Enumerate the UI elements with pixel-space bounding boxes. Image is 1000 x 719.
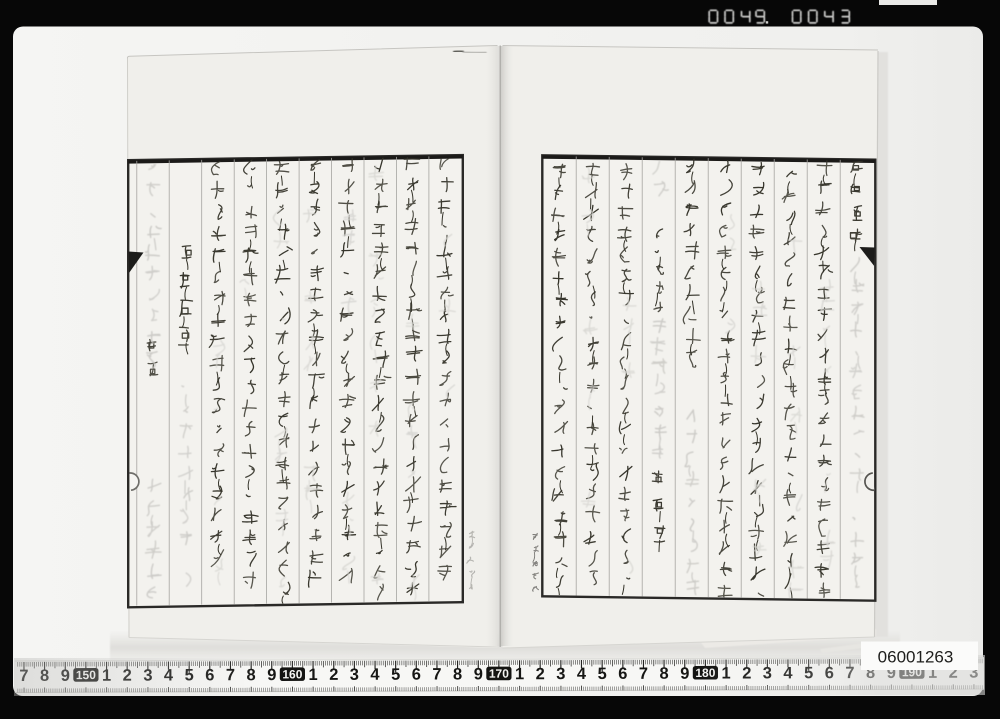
svg-text:9: 9 bbox=[267, 666, 276, 684]
svg-text:2: 2 bbox=[536, 665, 545, 683]
svg-text:5: 5 bbox=[391, 666, 400, 684]
svg-text:3: 3 bbox=[556, 665, 565, 683]
svg-text:9: 9 bbox=[680, 665, 689, 683]
svg-text:9: 9 bbox=[474, 665, 483, 683]
svg-text:170: 170 bbox=[489, 667, 509, 681]
svg-text:7: 7 bbox=[432, 666, 441, 684]
svg-text:160: 160 bbox=[282, 667, 302, 681]
svg-text:7: 7 bbox=[639, 665, 648, 683]
svg-text:6: 6 bbox=[618, 665, 627, 683]
svg-text:1: 1 bbox=[515, 665, 524, 683]
svg-text:6: 6 bbox=[412, 666, 421, 684]
svg-text:06001263: 06001263 bbox=[878, 648, 954, 667]
svg-text:4: 4 bbox=[370, 666, 380, 684]
svg-text:8: 8 bbox=[453, 665, 462, 683]
svg-text:8: 8 bbox=[659, 665, 668, 683]
svg-text:2: 2 bbox=[329, 666, 338, 684]
svg-text:1: 1 bbox=[308, 666, 317, 684]
svg-text:4: 4 bbox=[577, 665, 587, 683]
svg-text:3: 3 bbox=[350, 666, 359, 684]
svg-text:5: 5 bbox=[598, 665, 607, 683]
